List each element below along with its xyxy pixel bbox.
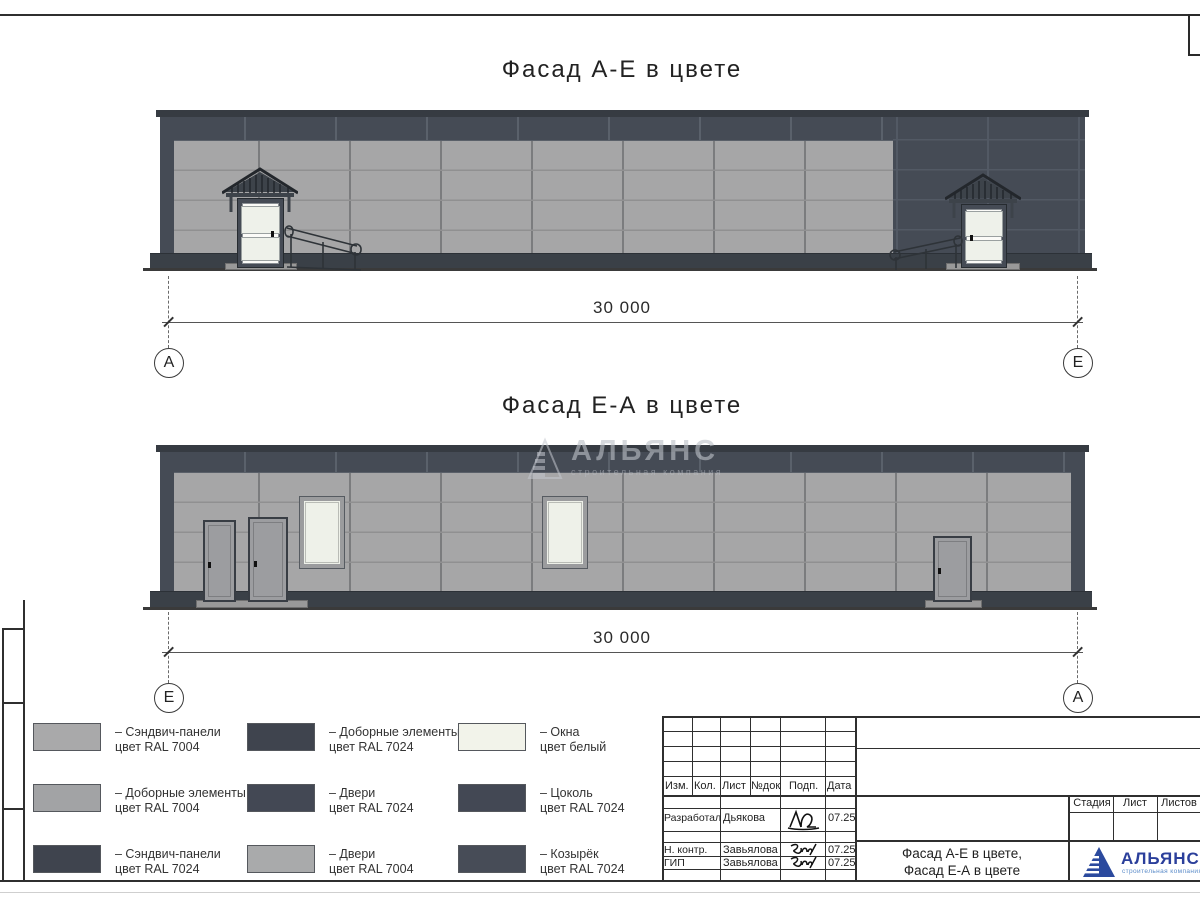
facade2-ext-line-left [168, 612, 169, 683]
facade2-axis-left: Е [154, 683, 184, 713]
frame-left-strip-outer [23, 600, 25, 880]
facade1-right-door [961, 204, 1007, 268]
facade2-coping [156, 445, 1089, 452]
signature-ncontrol [788, 842, 822, 856]
signature-developer [786, 809, 822, 831]
legend-label: – Дверицвет RAL 7004 [329, 847, 414, 877]
door-glass-upper [241, 206, 280, 234]
facade2-right-corner-trim [1071, 452, 1085, 591]
legend-swatch [33, 784, 101, 812]
door-handle [938, 568, 941, 574]
door-glass-lower [965, 240, 1003, 261]
tb-date-gip: 07.25 [828, 857, 856, 869]
legend-label: – Доборные элементыцвет RAL 7024 [329, 725, 460, 755]
door-handle [254, 561, 257, 567]
door-panel [208, 525, 231, 597]
legend-label: – Сэндвич-панелицвет RAL 7004 [115, 725, 221, 755]
legend-swatch [33, 845, 101, 873]
legend-label: – Сэндвич-панелицвет RAL 7024 [115, 847, 221, 877]
facade2-door-2 [248, 517, 288, 602]
facade2-window-2 [543, 497, 587, 568]
facade2-left-corner-trim [160, 452, 174, 591]
facade2-window-1 [300, 497, 344, 568]
frame-bottom-line [0, 880, 1200, 882]
frame-left-strip-div3 [2, 808, 24, 810]
legend-swatch [33, 723, 101, 751]
facade1-title: Фасад А-Е в цвете [372, 56, 872, 84]
tb-doc-name: Фасад А-Е в цвете, Фасад Е-А в цвете [857, 845, 1067, 879]
facade1-axis-left: А [154, 348, 184, 378]
window-glass [305, 502, 339, 563]
frame-left-strip-inner [2, 628, 4, 880]
facade2-ext-line-right [1077, 612, 1078, 683]
facade2-dim-value: 30 000 [522, 628, 722, 648]
facade1-coping [156, 110, 1089, 117]
door-panel [938, 541, 967, 597]
facade1-left-door [237, 198, 284, 268]
legend-label: – Доборные элементыцвет RAL 7004 [115, 786, 246, 816]
facade1-dim-line [162, 322, 1083, 323]
tb-col-stage: Стадия [1072, 797, 1112, 809]
door-glass-lower [241, 237, 280, 261]
tb-role-gip: ГИП [664, 857, 685, 869]
frame-left-strip-div1 [2, 628, 24, 630]
door-handle [208, 562, 211, 568]
facade1-axis-right: Е [1063, 348, 1093, 378]
facade2-door-3 [933, 536, 972, 602]
legend-label: – Цокольцвет RAL 7024 [540, 786, 625, 816]
door-glass-upper [965, 211, 1003, 237]
legend-swatch [247, 845, 315, 873]
tb-col-izm: Изм. [665, 780, 689, 792]
company-logo-subtitle: строительная компания [1122, 868, 1200, 875]
facade1-left-ramp [283, 220, 367, 272]
frame-corner-box [1188, 14, 1200, 56]
legend-swatch [458, 723, 526, 751]
paper-edge-line [0, 892, 1200, 893]
tb-date-ncontrol: 07.25 [828, 844, 856, 856]
company-logo-name: АЛЬЯНС [1121, 849, 1200, 869]
tb-role-developer: Разработал [664, 812, 721, 824]
tb-name-developer: Дьякова [723, 812, 765, 824]
frame-left-strip-div2 [2, 702, 24, 704]
tb-col-list: Лист [722, 780, 746, 792]
door-handle [271, 231, 274, 237]
door-panel [253, 522, 283, 597]
legend-swatch [458, 784, 526, 812]
frame-top-line [0, 14, 1200, 16]
tb-date-developer: 07.25 [828, 812, 856, 824]
facade1-right-ramp [886, 232, 964, 272]
tb-name-ncontrol: Завьялова [723, 844, 778, 856]
legend-swatch [247, 723, 315, 751]
window-glass [548, 502, 582, 563]
facade1-dim-value: 30 000 [522, 298, 722, 318]
tb-col-data: Дата [827, 780, 851, 792]
facade2-dim-line [162, 652, 1083, 653]
company-logo-icon [1082, 845, 1116, 879]
facade2-title: Фасад Е-А в цвете [372, 392, 872, 420]
tb-col-ndok: №док [751, 780, 780, 792]
door-handle [970, 235, 973, 241]
tb-col-podp: Подп. [789, 780, 818, 792]
tb-role-ncontrol: Н. контр. [664, 844, 707, 856]
signature-gip [788, 855, 822, 869]
legend-swatch [458, 845, 526, 873]
facade2-door-1 [203, 520, 236, 602]
legend-swatch [247, 784, 315, 812]
tb-col-sheets: Листов [1159, 797, 1199, 809]
legend-label: – Козырёкцвет RAL 7024 [540, 847, 625, 877]
facade1-ext-line-left [168, 276, 169, 348]
legend-label: – Окнацвет белый [540, 725, 606, 755]
tb-col-kol: Кол. [694, 780, 716, 792]
facade1-left-corner-trim [160, 117, 174, 253]
tb-name-gip: Завьялова [723, 857, 778, 869]
tb-col-sheet: Лист [1115, 797, 1155, 809]
facade2-top-band [160, 452, 1085, 472]
legend-label: – Дверицвет RAL 7024 [329, 786, 414, 816]
facade2-axis-right: А [1063, 683, 1093, 713]
facade1-ext-line-right [1077, 276, 1078, 348]
